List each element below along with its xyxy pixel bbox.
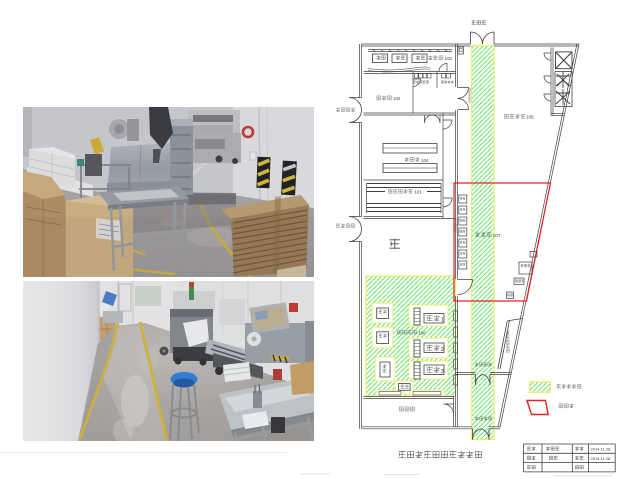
svg-text:101: 101 [415, 190, 423, 195]
svg-text:2: 2 [441, 347, 444, 353]
svg-text:2014.11.28: 2014.11.28 [591, 447, 611, 452]
svg-text:103: 103 [445, 56, 453, 61]
svg-text:1: 1 [441, 317, 444, 323]
svg-text:107: 107 [493, 233, 501, 239]
svg-text:2014.11.28: 2014.11.28 [591, 456, 611, 461]
svg-text:102: 102 [393, 96, 401, 101]
svg-text:3: 3 [441, 369, 444, 375]
svg-text:106: 106 [419, 330, 427, 335]
svg-text:104: 104 [421, 158, 429, 163]
svg-text:105: 105 [526, 115, 534, 120]
